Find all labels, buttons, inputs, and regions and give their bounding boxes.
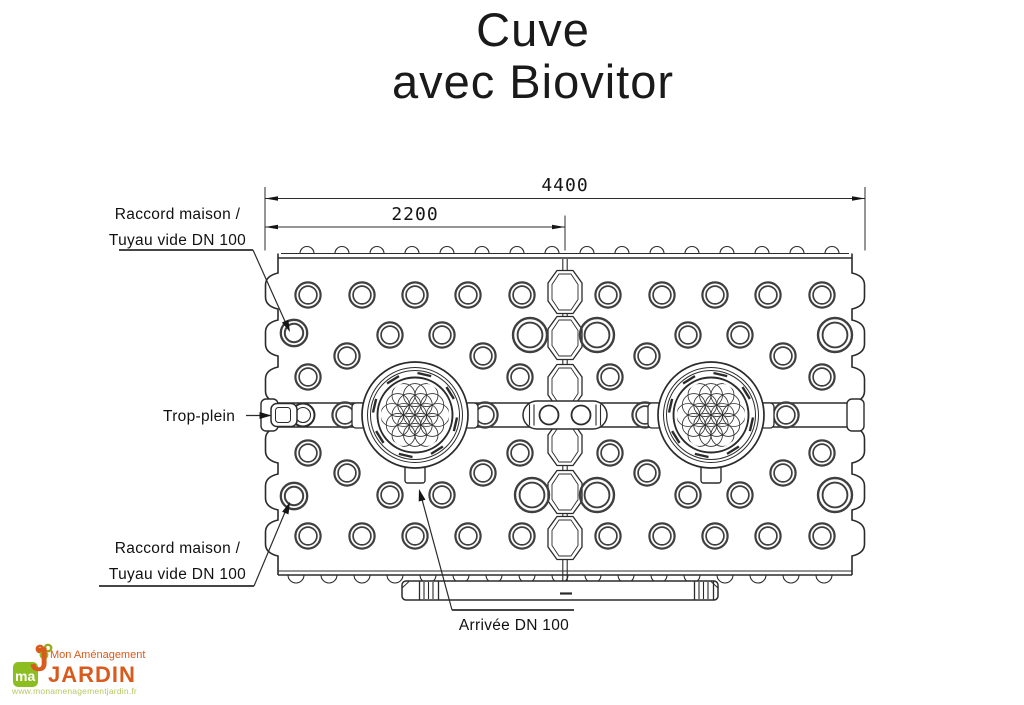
seam-capsule [523, 401, 607, 429]
tank-hole [459, 286, 477, 304]
top-rib-scallop [335, 247, 349, 254]
tank-hole [638, 347, 656, 365]
tank-hole [679, 326, 697, 344]
tank-hole [774, 464, 792, 482]
bottom-rib-scallop [354, 575, 370, 583]
dim-module-width: 2200 [391, 204, 438, 225]
tank-hole [813, 527, 831, 545]
leader-arrow [419, 489, 426, 502]
label-raccord-top-line2: Tuyau vide DN 100 [95, 228, 260, 254]
tank-hole [338, 347, 356, 365]
tank-hole [706, 527, 724, 545]
tank-hole [813, 286, 831, 304]
tank-hole [433, 486, 451, 504]
bottom-rib-scallop [816, 575, 832, 583]
logo-mark-j: J [30, 644, 49, 676]
label-trop-plein: Trop-plein [163, 404, 235, 430]
drawing-title: Cuve avec Biovitor [33, 4, 1024, 108]
tank-hole-large [518, 323, 543, 348]
bottom-rib-scallop [387, 575, 403, 583]
tank-hole [653, 527, 671, 545]
top-rib-scallop [790, 247, 804, 254]
tank-hole [599, 286, 617, 304]
top-rib-scallop [545, 247, 559, 254]
seam-connector [548, 271, 582, 314]
tank-hole [459, 527, 477, 545]
tank-hole-large [585, 483, 610, 508]
tank-hole [406, 527, 424, 545]
leader-raccord-top [253, 250, 288, 328]
tank-hole [731, 326, 749, 344]
overflow-plug [271, 404, 297, 427]
tank-hole [813, 444, 831, 462]
drawing-canvas: 4400 2200 Cuve avec Biovitor Raccord mai… [0, 0, 1024, 705]
bottom-rib-scallop [783, 575, 799, 583]
inlet-pipe-body [402, 581, 718, 600]
tank-hole [679, 486, 697, 504]
title-line-1: Cuve [33, 4, 1024, 56]
label-raccord-bottom-line1: Raccord maison / [95, 536, 260, 562]
seam-connector [548, 471, 582, 514]
tank-hole-large [823, 483, 848, 508]
tank-hole [381, 326, 399, 344]
title-line-2: avec Biovitor [33, 56, 1024, 108]
tank-hole-large [585, 323, 610, 348]
tank-hole [299, 527, 317, 545]
dimension-lines: 4400 2200 [265, 175, 865, 251]
bottom-rib-scallop [321, 575, 337, 583]
bottom-rib-scallop [717, 575, 733, 583]
top-rib-scallop [475, 247, 489, 254]
tank-hole [353, 527, 371, 545]
tank-hole [433, 326, 451, 344]
tank-hole [513, 527, 531, 545]
tank-hole [474, 347, 492, 365]
tank-hole [406, 286, 424, 304]
top-rib-scallop [755, 247, 769, 254]
bottom-rib-scallop [750, 575, 766, 583]
tank-hole [511, 368, 529, 386]
label-raccord-top: Raccord maison / Tuyau vide DN 100 [95, 202, 260, 254]
seam-connector [548, 517, 582, 560]
top-rib-scallop [580, 247, 594, 254]
dim-arrow [852, 196, 865, 201]
tank-hole [299, 368, 317, 386]
seam-connector [548, 317, 582, 360]
label-arrivee: Arrivée DN 100 [448, 613, 580, 639]
tank-hole [759, 286, 777, 304]
tank-hole [299, 444, 317, 462]
label-raccord-bottom: Raccord maison / Tuyau vide DN 100 [95, 536, 260, 588]
logo-brand-main: JARDIN [48, 662, 136, 688]
dim-arrow [552, 225, 565, 230]
tank-hole [759, 527, 777, 545]
tank-hole [706, 286, 724, 304]
top-rib-scallop [300, 247, 314, 254]
tank-hole [653, 286, 671, 304]
tank-hole [353, 286, 371, 304]
band-right-cap [847, 399, 864, 431]
top-rib-scallop [370, 247, 384, 254]
tank-hole [476, 406, 494, 424]
top-rib-scallop [685, 247, 699, 254]
tank-hole-large [520, 483, 545, 508]
logo-brand-top: Mon Aménagement [50, 649, 145, 661]
top-rib-scallop [510, 247, 524, 254]
dim-arrow [265, 225, 278, 230]
top-rib-scallop [650, 247, 664, 254]
dim-overall-width: 4400 [541, 175, 588, 196]
brand-logo: Mon Aménagement JARDIN ma J www.monamena… [10, 642, 160, 700]
bottom-rib-scallop [288, 575, 304, 583]
tank-hole-large [823, 323, 848, 348]
top-rib-scallop [405, 247, 419, 254]
tank-hole [601, 368, 619, 386]
tank-hole [731, 486, 749, 504]
tank-hole [381, 486, 399, 504]
tank-hole [777, 406, 795, 424]
label-raccord-bottom-line2: Tuyau vide DN 100 [95, 562, 260, 588]
tank-hole [813, 368, 831, 386]
dim-arrow [265, 196, 278, 201]
top-rib-scallop [440, 247, 454, 254]
tank-hole [474, 464, 492, 482]
tank-hole [299, 286, 317, 304]
raccord-socket [285, 487, 303, 505]
top-rib-scallop [825, 247, 839, 254]
tank-hole [599, 527, 617, 545]
top-rib-scallop [720, 247, 734, 254]
label-raccord-top-line1: Raccord maison / [95, 202, 260, 228]
tank-hole [601, 444, 619, 462]
tank-hole [638, 464, 656, 482]
tank-hole [774, 347, 792, 365]
top-rib-scallop [615, 247, 629, 254]
tank-hole [511, 444, 529, 462]
tank-hole [336, 406, 354, 424]
tank-hole [513, 286, 531, 304]
logo-url: www.monamenagementjardin.fr [12, 686, 137, 696]
tank-hole [338, 464, 356, 482]
inlet-pipe [402, 581, 718, 600]
